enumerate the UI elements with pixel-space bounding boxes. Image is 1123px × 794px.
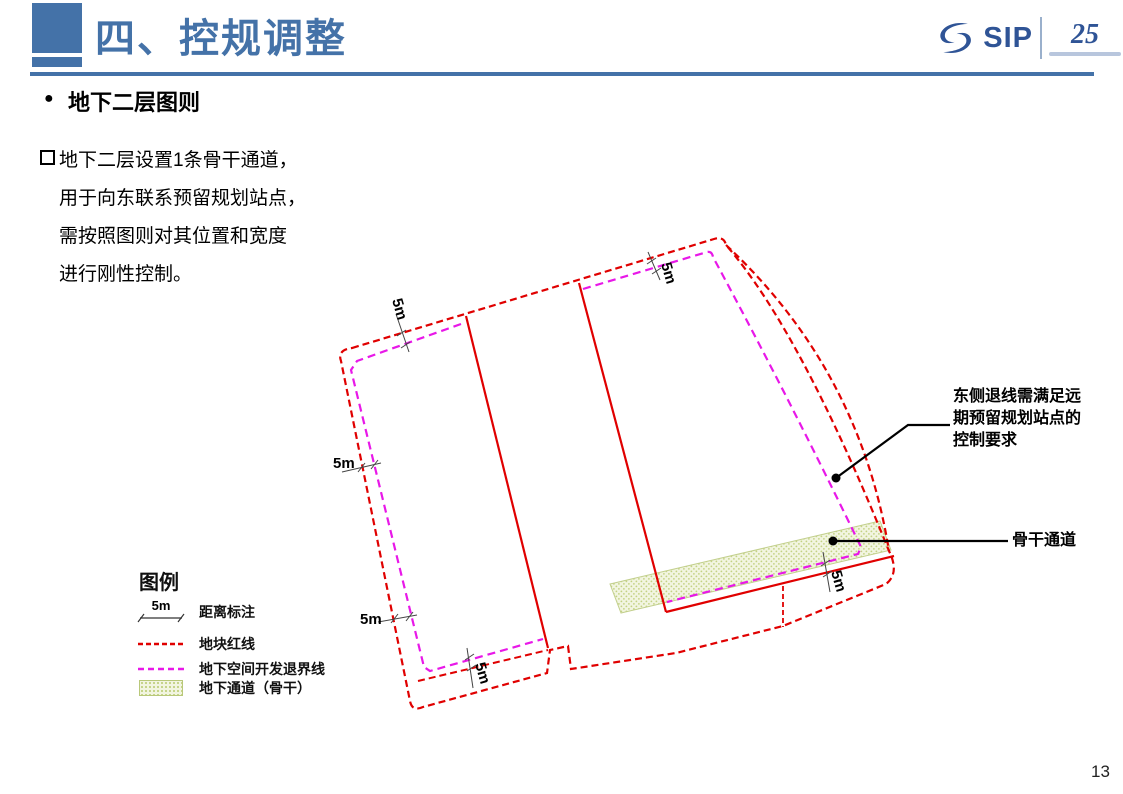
parcel-divider-east [579,283,666,612]
sip-logo-text: SIP [983,22,1033,55]
svg-text:5m: 5m [657,260,679,286]
section-bullet-icon: ● [44,90,54,108]
body-line: 地下二层设置1条骨干通道， [40,142,340,180]
svg-text:5m: 5m [388,296,410,322]
anniversary-25-logo: 25 [1071,21,1099,49]
body-line: 用于向东联系预留规划站点， [40,180,340,218]
body-paragraph: 地下二层设置1条骨干通道， 用于向东联系预留规划站点， 需按照图则对其位置和宽度… [40,142,340,294]
body-line: 需按照图则对其位置和宽度 [40,218,340,256]
square-bullet-icon [40,150,55,165]
annotation-east-setback: 东侧退线需满足远 期预留规划站点的 控制要求 [953,386,1081,452]
annotation-line: 期预留规划站点的 [953,408,1081,430]
svg-text:5m: 5m [827,568,849,594]
svg-text:5m: 5m [360,611,382,628]
callout-dot-trunk-passage [829,537,838,546]
parcel-divider-west [466,316,548,648]
svg-text:5m: 5m [333,455,355,472]
body-line: 进行刚性控制。 [40,256,340,294]
legend-title: 图例 [139,566,179,595]
green-hatch-swatch [137,680,185,696]
callout-dot-east-setback [832,474,841,483]
page-title: 四、控规调整 [95,6,347,64]
dimension-marker-top-west: 5m [388,296,410,352]
distance-marker-icon: 5m [137,599,185,625]
legend-label: 地下通道（骨干） [199,678,311,698]
sip-logo: SIP 25 [935,12,1121,64]
annotation-line: 控制要求 [953,430,1081,452]
annotation-trunk-passage: 骨干通道 [1012,530,1076,552]
header-accent-bar [32,57,82,67]
red-dashed-line-icon [137,640,185,648]
section-title: 地下二层图则 [68,85,200,117]
legend-label: 地下空间开发退界线 [199,659,325,679]
dimension-marker-west: 5m [333,455,381,472]
page-number: 13 [1091,762,1110,782]
site-plan-diagram: 5m 5m 5m 5m 5m 5m [330,230,1020,745]
plot-red-line-east-edge [726,245,889,551]
dimension-marker-southwest: 5m [360,611,417,628]
sip-swoosh-icon [935,18,976,58]
logo-divider [1040,17,1042,59]
legend-label: 距离标注 [199,602,255,622]
body-line-text: 地下二层设置1条骨干通道， [59,150,298,171]
legend-item-setback: 地下空间开发退界线 [137,659,325,679]
anniversary-tagline [1049,52,1121,56]
header-accent-square [32,3,82,53]
plot-red-line [340,238,894,708]
header-divider [30,72,1094,76]
leader-line-east-setback [836,425,950,478]
legend-item-redline: 地块红线 [137,634,255,654]
annotation-line: 东侧退线需满足远 [953,386,1081,408]
svg-text:5m: 5m [152,599,171,613]
svg-text:5m: 5m [471,660,493,686]
legend-item-distance: 5m 距离标注 [137,599,255,625]
magenta-dashed-line-icon [137,665,185,673]
legend-label: 地块红线 [199,634,255,654]
legend-item-passage: 地下通道（骨干） [137,678,311,698]
